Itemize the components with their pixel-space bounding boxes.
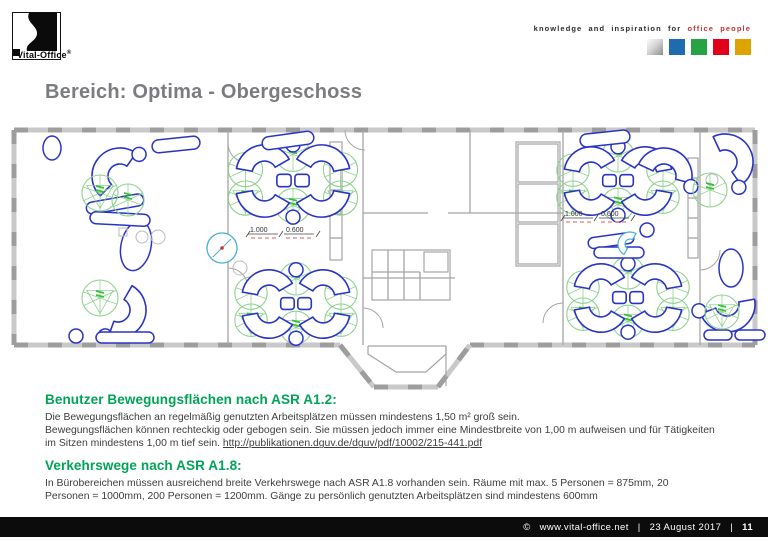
svg-text:1.000: 1.000	[250, 227, 268, 234]
footer-separator: |	[638, 522, 641, 533]
floorplan: 1.0000.6001.0000.600	[0, 118, 768, 394]
section-verkehrswege: Verkehrswege nach ASR A1.8: In Büroberei…	[45, 458, 751, 503]
body-line: Personen = 1000mm, 200 Personen = 1200mm…	[45, 490, 751, 503]
brand-square	[669, 39, 685, 55]
footer-page-number: 11	[742, 522, 753, 533]
page-title: Bereich: Optima - Obergeschoss	[45, 81, 362, 104]
footer-copyright: ©	[523, 522, 530, 533]
brand-square	[647, 39, 663, 55]
tagline-plain: knowledge and inspiration for	[534, 24, 682, 33]
header-tagline: knowledge and inspiration for office peo…	[534, 24, 751, 33]
section-heading: Benutzer Bewegungsflächen nach ASR A1.2:	[45, 392, 751, 407]
section-bewegungsflaechen: Benutzer Bewegungsflächen nach ASR A1.2:…	[45, 392, 751, 451]
body-line: In Bürobereichen müssen ausreichend brei…	[45, 477, 751, 490]
tagline-accent: office people	[687, 24, 751, 33]
brand-square	[713, 39, 729, 55]
footer-separator: |	[730, 522, 733, 533]
floorplan-svg: 1.0000.6001.0000.600	[0, 118, 768, 394]
body-line-prefix: im Sitzen mindestens 1,00 m tief sein.	[45, 438, 223, 449]
footer-date: 23 August 2017	[650, 522, 722, 533]
svg-text:0.600: 0.600	[286, 227, 304, 234]
brand-color-squares	[647, 39, 751, 55]
logo-wordmark: Vital-Office®	[17, 50, 71, 60]
brand-square	[735, 39, 751, 55]
body-line: Die Bewegungsflächen an regelmäßig genut…	[45, 411, 751, 424]
brand-square	[691, 39, 707, 55]
svg-text:0.600: 0.600	[601, 211, 619, 218]
footer-bar: © www.vital-office.net | 23 August 2017 …	[0, 517, 768, 537]
body-line: im Sitzen mindestens 1,00 m tief sein. h…	[45, 437, 751, 450]
slide: Vital-Office® knowledge and inspiration …	[0, 0, 768, 541]
body-line: Bewegungsflächen können rechteckig oder …	[45, 424, 751, 437]
footer-site: www.vital-office.net	[540, 522, 629, 533]
dguv-pdf-link[interactable]: http://publikationen.dguv.de/dguv/pdf/10…	[223, 438, 482, 449]
section-heading: Verkehrswege nach ASR A1.8:	[45, 458, 751, 473]
svg-text:1.000: 1.000	[565, 211, 583, 218]
